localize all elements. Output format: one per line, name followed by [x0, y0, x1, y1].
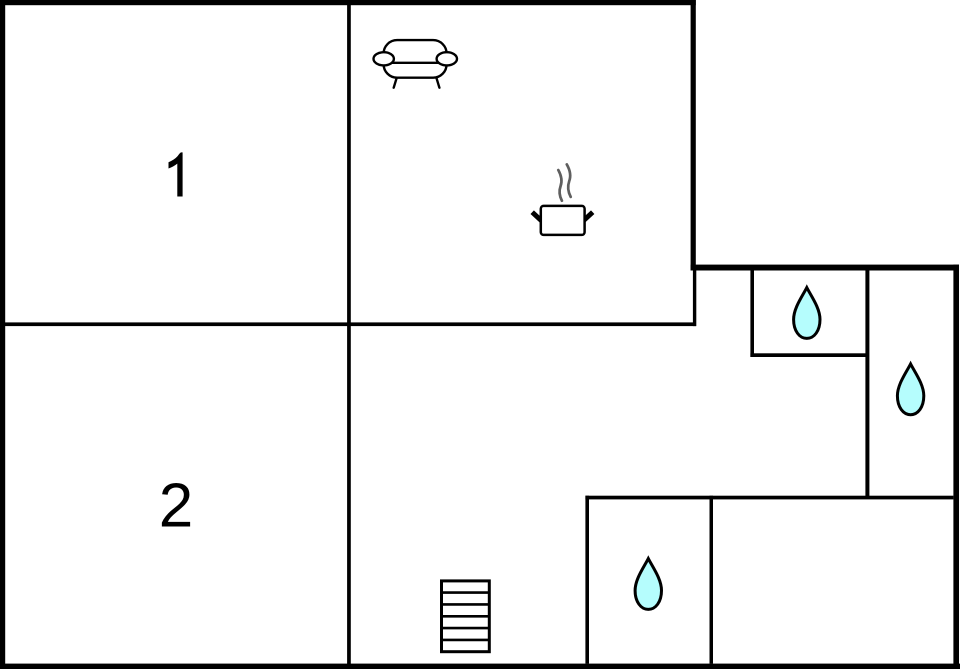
svg-text:2: 2	[159, 472, 193, 541]
